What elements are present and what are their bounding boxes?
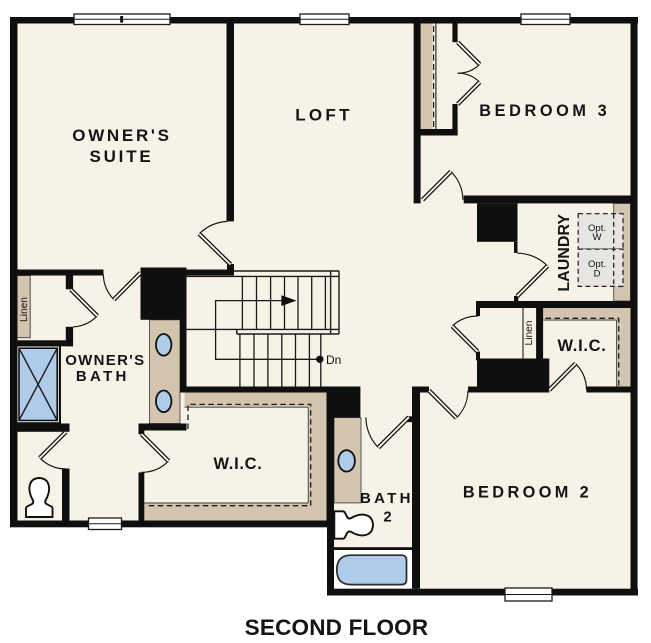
svg-text:W: W — [593, 232, 602, 243]
svg-text:OWNER'S: OWNER'S — [72, 126, 171, 145]
svg-text:BATH: BATH — [360, 490, 414, 507]
svg-text:SECOND FLOOR: SECOND FLOOR — [245, 615, 429, 640]
svg-text:SUITE: SUITE — [89, 147, 153, 166]
svg-text:LOFT: LOFT — [295, 105, 353, 124]
svg-text:LAUNDRY: LAUNDRY — [556, 214, 573, 292]
svg-text:BEDROOM 3: BEDROOM 3 — [479, 102, 610, 120]
svg-text:Dn: Dn — [326, 353, 341, 367]
svg-text:OWNER'S: OWNER'S — [65, 352, 145, 369]
svg-text:W.I.C.: W.I.C. — [213, 455, 262, 473]
svg-text:BATH: BATH — [76, 368, 130, 385]
svg-text:Linen: Linen — [19, 297, 30, 322]
svg-text:Linen: Linen — [524, 321, 535, 346]
svg-text:D: D — [594, 268, 601, 279]
svg-text:BEDROOM 2: BEDROOM 2 — [463, 484, 592, 502]
svg-text:W.I.C.: W.I.C. — [557, 337, 606, 355]
svg-text:2: 2 — [383, 508, 391, 525]
